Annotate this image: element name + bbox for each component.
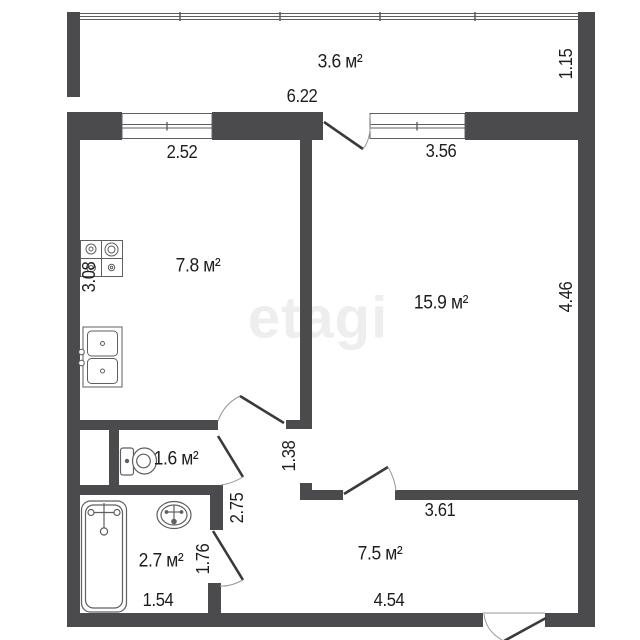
bathroom-door-arc	[220, 580, 243, 586]
corridor-depth-label: 2.75	[228, 493, 246, 524]
living-bottom-wall	[395, 490, 578, 500]
balcony-glazing	[80, 12, 578, 21]
living-bottom-stub	[312, 490, 343, 500]
entrance-door-arc	[484, 614, 502, 640]
toilet-bottom-wall	[67, 485, 223, 495]
kitchen-depth-label: 3.08	[80, 262, 98, 293]
kitchen-door-leaf	[240, 396, 284, 423]
kitchen-sink-icon	[79, 327, 122, 387]
balcony-left-wall	[67, 12, 80, 97]
bottom-wall-left	[67, 613, 483, 627]
kitchen-living-wall-lower	[300, 483, 312, 500]
left-wall	[67, 112, 80, 627]
bottom-wall-right	[545, 613, 595, 627]
toilet-door-leaf	[218, 436, 243, 477]
toilet-area-label: 1.6 м²	[154, 450, 199, 469]
balcony-door-arc	[363, 115, 370, 149]
hall-area-label: 7.5 м²	[358, 545, 403, 564]
floor-plan-drawing	[0, 0, 640, 640]
balcony-divider-wall-3	[465, 112, 578, 140]
bath-door-label: 1.76	[194, 544, 212, 575]
hall-length-label: 4.54	[374, 591, 405, 609]
kitchen-area-label: 7.8 м²	[176, 257, 221, 276]
balcony-divider-wall-2	[212, 112, 323, 140]
living-window	[370, 114, 465, 139]
toilet-left-wall	[109, 430, 119, 485]
kitchen-door-arc	[218, 396, 240, 421]
living-window-label: 3.56	[426, 142, 457, 160]
kitchen-bottom-wall	[67, 420, 218, 430]
balcony-depth-label: 1.15	[557, 49, 575, 80]
living-door-leaf	[344, 467, 388, 494]
door-post-stub	[286, 420, 312, 429]
balcony-divider-wall-1	[80, 112, 122, 140]
washbasin-icon	[157, 502, 191, 529]
entrance-door-leaf	[504, 618, 546, 640]
bath-right-wall-lower	[208, 583, 221, 613]
bathroom-door-leaf	[213, 531, 243, 580]
floor-plan: etagi	[0, 0, 640, 640]
kitchen-window-label: 2.52	[167, 143, 198, 161]
balcony-door-leaf	[324, 122, 363, 149]
bath-width-label: 1.54	[143, 591, 174, 609]
bath-area-label: 2.7 м²	[139, 552, 184, 571]
living-area-label: 15.9 м²	[414, 294, 468, 313]
bath-right-wall-upper	[210, 485, 223, 530]
balcony-area-label: 3.6 м²	[318, 53, 363, 72]
living-door-arc	[388, 467, 396, 491]
hall-wall-label: 3.61	[425, 501, 456, 519]
walls	[67, 12, 595, 627]
balcony-length-label: 6.22	[287, 87, 318, 105]
living-passage-label: 1.38	[280, 441, 298, 472]
toilet-door-arc	[221, 477, 243, 485]
bathtub-icon	[82, 501, 127, 612]
right-wall	[578, 12, 595, 627]
toilet-icon	[121, 448, 157, 475]
kitchen-window	[122, 114, 212, 139]
living-depth-label: 4.46	[557, 282, 575, 313]
kitchen-living-wall	[300, 140, 312, 428]
